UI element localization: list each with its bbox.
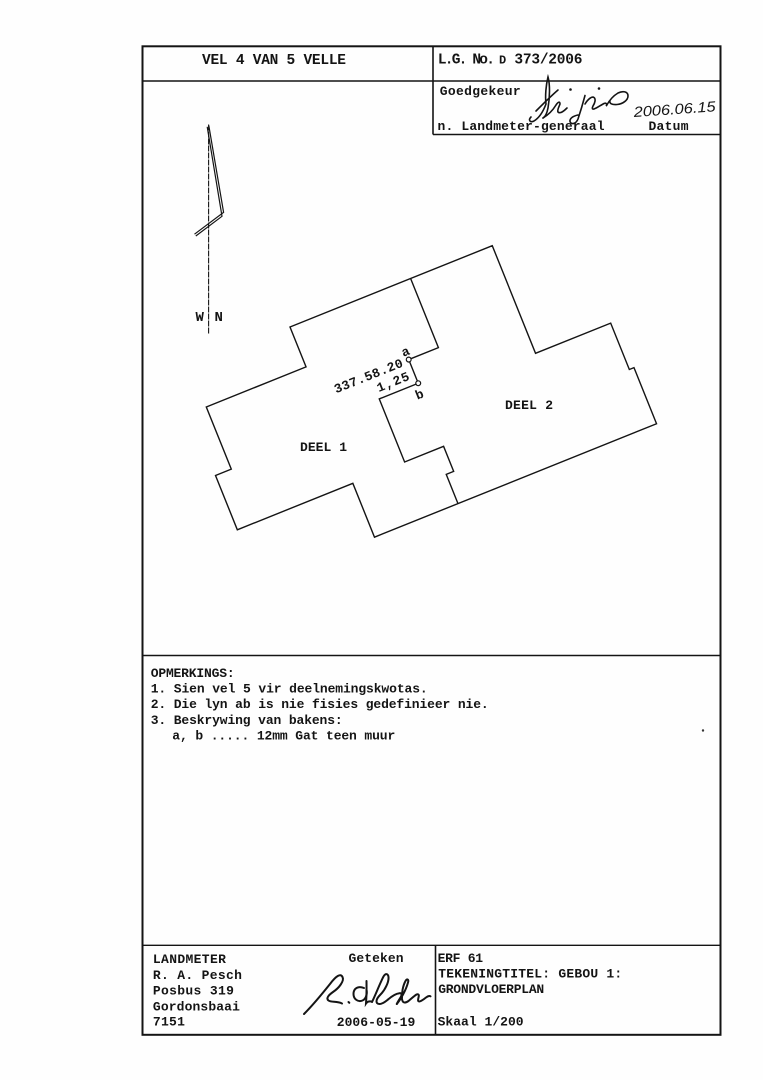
- svg-text:D: D: [499, 54, 506, 68]
- svg-text:LANDMETER: LANDMETER: [153, 952, 226, 967]
- svg-text:a, b ..... 12mm Gat teen muur: a, b ..... 12mm Gat teen muur: [172, 729, 395, 744]
- svg-text:n. Landmeter-generaal: n. Landmeter-generaal: [438, 119, 605, 134]
- svg-text:R. A. Pesch: R. A. Pesch: [153, 968, 242, 983]
- svg-text:373/2006: 373/2006: [514, 53, 582, 69]
- svg-text:DEEL 2: DEEL 2: [505, 398, 553, 413]
- svg-text:N: N: [215, 310, 223, 326]
- svg-text:7151: 7151: [153, 1015, 185, 1030]
- svg-text:Geteken: Geteken: [349, 951, 404, 966]
- svg-text:OPMERKINGS:: OPMERKINGS:: [151, 666, 235, 681]
- svg-text:2006-05-19: 2006-05-19: [337, 1015, 416, 1030]
- svg-text:2. Die lyn ab is nie fisies ge: 2. Die lyn ab is nie fisies gedefinieer …: [151, 697, 489, 712]
- svg-text:Datum: Datum: [649, 119, 689, 134]
- svg-text:b: b: [413, 387, 426, 404]
- svg-text:ERF 61: ERF 61: [438, 951, 484, 966]
- svg-text:Goedgekeur: Goedgekeur: [440, 84, 521, 99]
- svg-text:Gordonsbaai: Gordonsbaai: [153, 999, 240, 1014]
- svg-text:L.G. No.: L.G. No.: [438, 53, 495, 69]
- svg-text:a: a: [399, 344, 412, 361]
- svg-text:W: W: [196, 310, 205, 326]
- svg-text:VEL 4 VAN 5 VELLE: VEL 4 VAN 5 VELLE: [202, 53, 346, 69]
- svg-text:Skaal 1/200: Skaal 1/200: [438, 1015, 524, 1030]
- svg-text:DEEL 1: DEEL 1: [300, 440, 347, 455]
- svg-text:Posbus 319: Posbus 319: [153, 984, 234, 999]
- svg-text:TEKENINGTITEL: GEBOU 1:: TEKENINGTITEL: GEBOU 1:: [438, 967, 622, 982]
- svg-text:1. Sien vel 5 vir deelnemingsk: 1. Sien vel 5 vir deelnemingskwotas.: [151, 682, 428, 697]
- svg-text:3. Beskrywing van bakens:: 3. Beskrywing van bakens:: [151, 713, 343, 728]
- svg-text:GRONDVLOERPLAN: GRONDVLOERPLAN: [438, 982, 544, 997]
- svg-text:2006.06.15: 2006.06.15: [632, 99, 717, 121]
